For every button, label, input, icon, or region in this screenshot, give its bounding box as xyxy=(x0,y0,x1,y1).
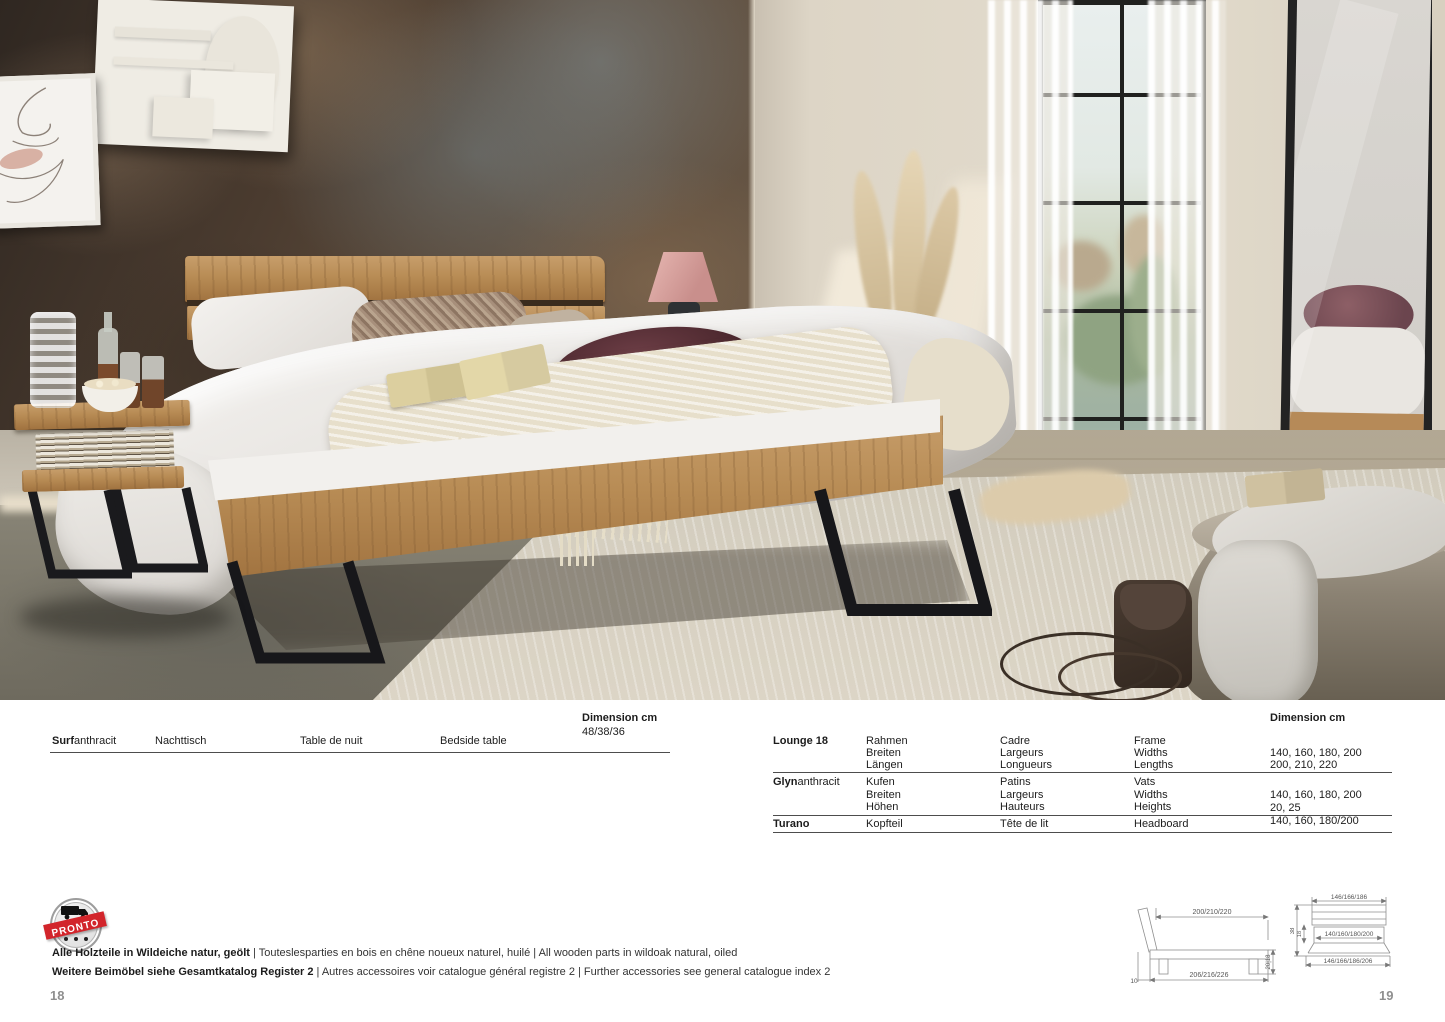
product-name: Glynanthracit xyxy=(773,776,840,788)
draped-cloth-fall xyxy=(1198,540,1318,700)
cell-val: 140, 160, 180, 200 xyxy=(1270,747,1362,759)
relief-artwork xyxy=(92,0,294,152)
stamp-dots xyxy=(64,937,88,943)
cell-val: 140, 160, 180/200 xyxy=(1270,815,1359,827)
cell-val: 200, 210, 220 xyxy=(1270,759,1337,771)
cell-en: Heights xyxy=(1134,801,1171,813)
cell-en: Vats xyxy=(1134,776,1155,788)
dim-front-left: 38 xyxy=(1290,927,1296,934)
cell-de: Höhen xyxy=(866,801,898,813)
diagram-front-view: 146/166/186 140/160/180/200 146/166/186/… xyxy=(1290,893,1404,991)
bed-skid-left xyxy=(226,560,386,666)
dim-side-bottom: 206/216/226 xyxy=(1190,972,1229,979)
candlestick-pair xyxy=(30,312,76,408)
cell-en: Headboard xyxy=(1134,818,1188,830)
cell-de: Breiten xyxy=(866,789,901,801)
product-name: Lounge 18 xyxy=(773,735,828,747)
dim-front-top: 146/166/186 xyxy=(1331,894,1368,901)
left-dimension-label: Dimension cm xyxy=(582,712,657,724)
diagram-side-view: 200/210/220 20|18 206/216/226 10 xyxy=(1126,896,1278,990)
footer-line-2: Weitere Beimöbel siehe Gesamtkatalog Reg… xyxy=(52,966,830,978)
bed-skid-right xyxy=(812,488,992,618)
cell-de: Längen xyxy=(866,759,903,771)
bag-strap xyxy=(1058,652,1182,700)
nightstand-shelf xyxy=(22,466,185,492)
nightstand-skid-right xyxy=(112,486,208,576)
right-table-rule xyxy=(773,772,1392,773)
left-name-en: Bedside table xyxy=(440,735,507,747)
cell-fr: Tête de lit xyxy=(1000,818,1048,830)
left-table-rule xyxy=(50,752,670,753)
cell-en: Lengths xyxy=(1134,759,1173,771)
cell-val: 140, 160, 180, 200 xyxy=(1270,789,1362,801)
cell-fr: Patins xyxy=(1000,776,1031,788)
popcorn xyxy=(84,378,136,390)
cell-en: Widths xyxy=(1134,747,1168,759)
cell-fr: Largeurs xyxy=(1000,747,1043,759)
cell-fr: Hauteurs xyxy=(1000,801,1045,813)
drinking-glass xyxy=(142,356,164,408)
cell-de: Kufen xyxy=(866,776,895,788)
right-table-rule xyxy=(773,832,1392,833)
left-name-fr: Table de nuit xyxy=(300,735,362,747)
cell-de: Breiten xyxy=(866,747,901,759)
left-dimension-value: 48/38/36 xyxy=(582,726,625,738)
cell-de: Rahmen xyxy=(866,735,908,747)
line-art-frame xyxy=(0,73,101,229)
cell-en: Widths xyxy=(1134,789,1168,801)
dim-side-top: 200/210/220 xyxy=(1193,909,1232,916)
product-name: Turano xyxy=(773,818,809,830)
footer-line-1: Alle Holzteile in Wildeiche natur, geölt… xyxy=(52,947,737,959)
dim-front-inner: 18 xyxy=(1297,931,1303,937)
nightstand-shadow xyxy=(20,596,230,638)
dim-side-right: 20|18 xyxy=(1266,954,1272,970)
page-number-right: 19 xyxy=(1379,988,1393,1003)
dim-front-middle: 140/160/180/200 xyxy=(1325,931,1374,938)
dim-front-bottom: 146/166/186/206 xyxy=(1324,958,1373,965)
cell-fr: Longueurs xyxy=(1000,759,1052,771)
dim-side-left: 10 xyxy=(1130,978,1138,985)
bottle-neck xyxy=(104,312,112,332)
right-dimension-label: Dimension cm xyxy=(1270,712,1345,724)
bedroom-photo xyxy=(0,0,1445,700)
cell-fr: Cadre xyxy=(1000,735,1030,747)
left-product: Surfanthracit xyxy=(52,735,116,747)
cell-en: Frame xyxy=(1134,735,1166,747)
cell-fr: Largeurs xyxy=(1000,789,1043,801)
left-name-de: Nachttisch xyxy=(155,735,206,747)
cell-de: Kopfteil xyxy=(866,818,903,830)
pronto-stamp: PRONTO xyxy=(48,896,102,952)
cell-val: 20, 25 xyxy=(1270,802,1301,814)
page-number-left: 18 xyxy=(50,988,64,1003)
